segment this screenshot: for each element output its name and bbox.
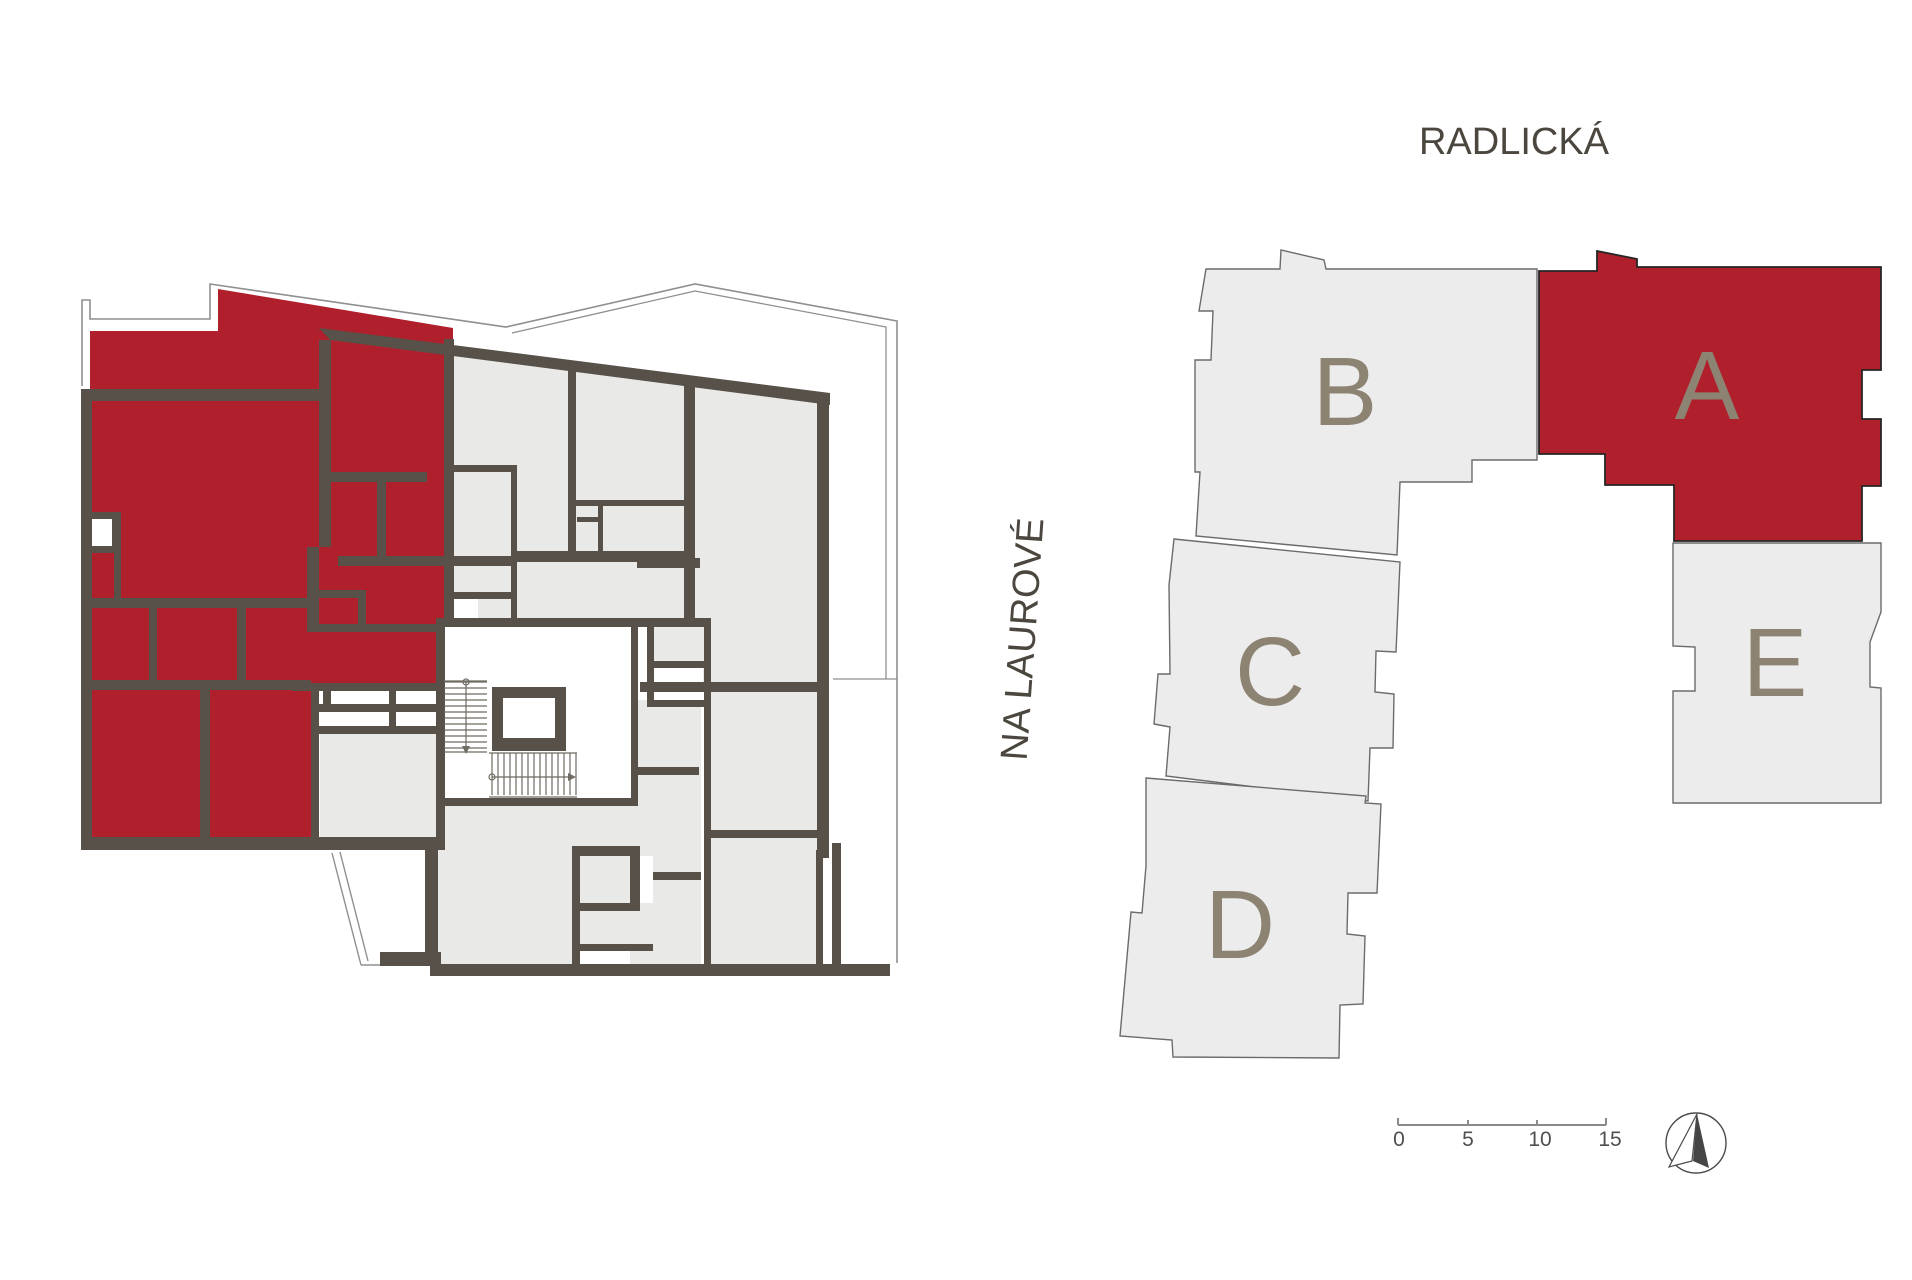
svg-text:0: 0 (1393, 1128, 1405, 1151)
svg-text:E: E (1743, 608, 1808, 717)
svg-text:10: 10 (1528, 1128, 1551, 1151)
svg-text:B: B (1313, 337, 1378, 446)
svg-text:5: 5 (1462, 1128, 1474, 1151)
svg-text:A: A (1675, 331, 1740, 440)
svg-text:RADLICKÁ: RADLICKÁ (1419, 120, 1610, 163)
svg-text:C: C (1235, 617, 1305, 726)
svg-text:D: D (1205, 870, 1275, 979)
svg-text:15: 15 (1598, 1128, 1621, 1151)
